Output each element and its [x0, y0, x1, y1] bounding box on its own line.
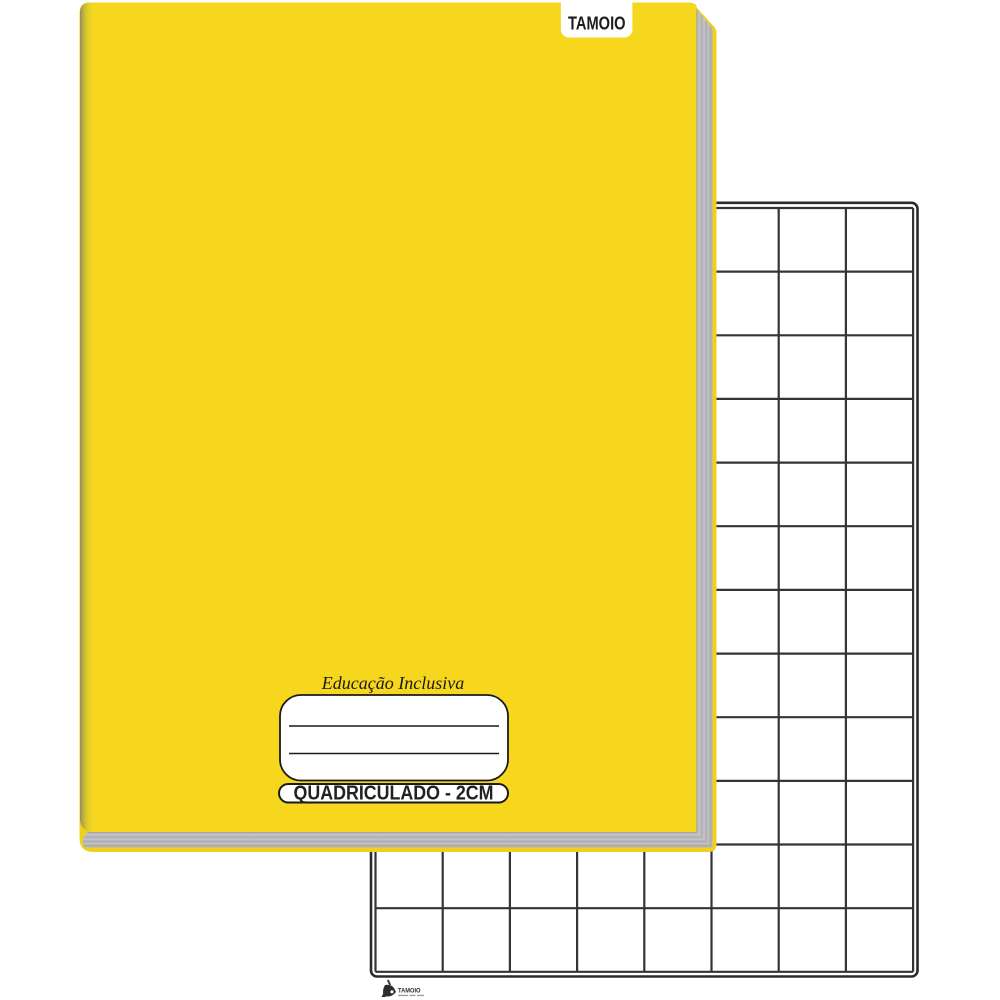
svg-text:QUADRICULADO - 2CM: QUADRICULADO - 2CM — [294, 783, 494, 805]
svg-text:TAMOIO: TAMOIO — [568, 13, 626, 34]
svg-text:Educação Inclusiva: Educação Inclusiva — [321, 673, 464, 693]
svg-text:TAMOIO: TAMOIO — [398, 988, 421, 995]
